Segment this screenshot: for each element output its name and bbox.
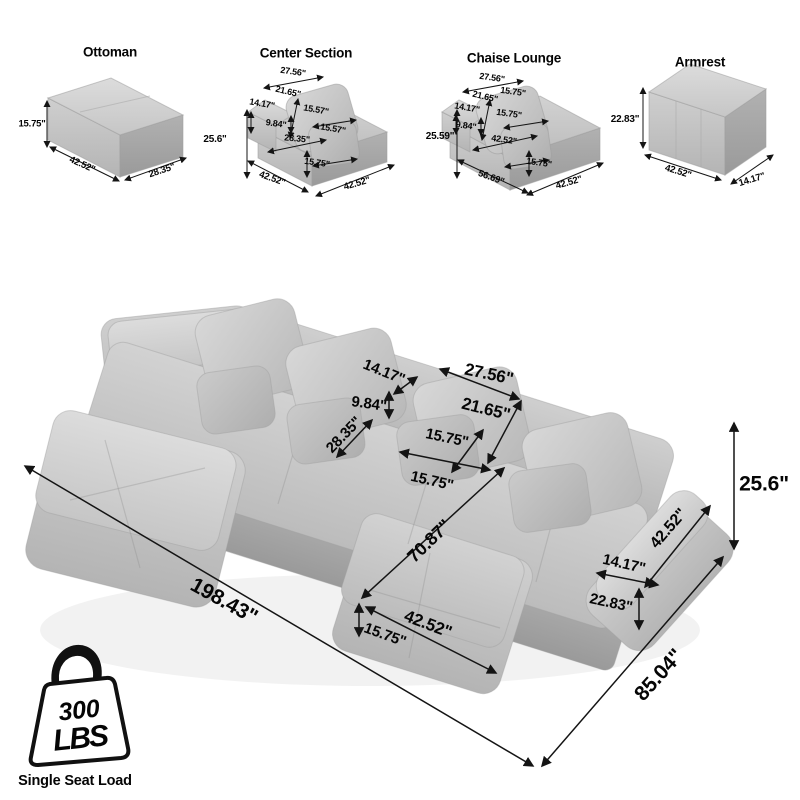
armrest-height-label: 22.83" xyxy=(611,115,640,125)
sofa-dimension-diagram: Ottoman Center Section Chaise Lounge Arm… xyxy=(0,0,800,800)
chaise-overall-height-label: 25.59" xyxy=(426,132,455,142)
sofa-illustration xyxy=(0,0,800,800)
weight-caption-label: Single Seat Load xyxy=(18,774,132,789)
ottoman-height-label: 15.75" xyxy=(18,119,45,129)
center-overall-height-label: 25.6" xyxy=(203,135,226,145)
weight-unit-label: LBS xyxy=(52,721,109,756)
armrest-card-shape xyxy=(649,64,766,175)
main-overall-height-label: 25.6" xyxy=(739,474,789,495)
chaise-lounge-title: Chaise Lounge xyxy=(467,51,561,65)
center-section-card-shape xyxy=(248,81,387,186)
center-section-title: Center Section xyxy=(260,46,352,60)
ottoman-title: Ottoman xyxy=(83,45,137,59)
armrest-title: Armrest xyxy=(675,55,725,69)
